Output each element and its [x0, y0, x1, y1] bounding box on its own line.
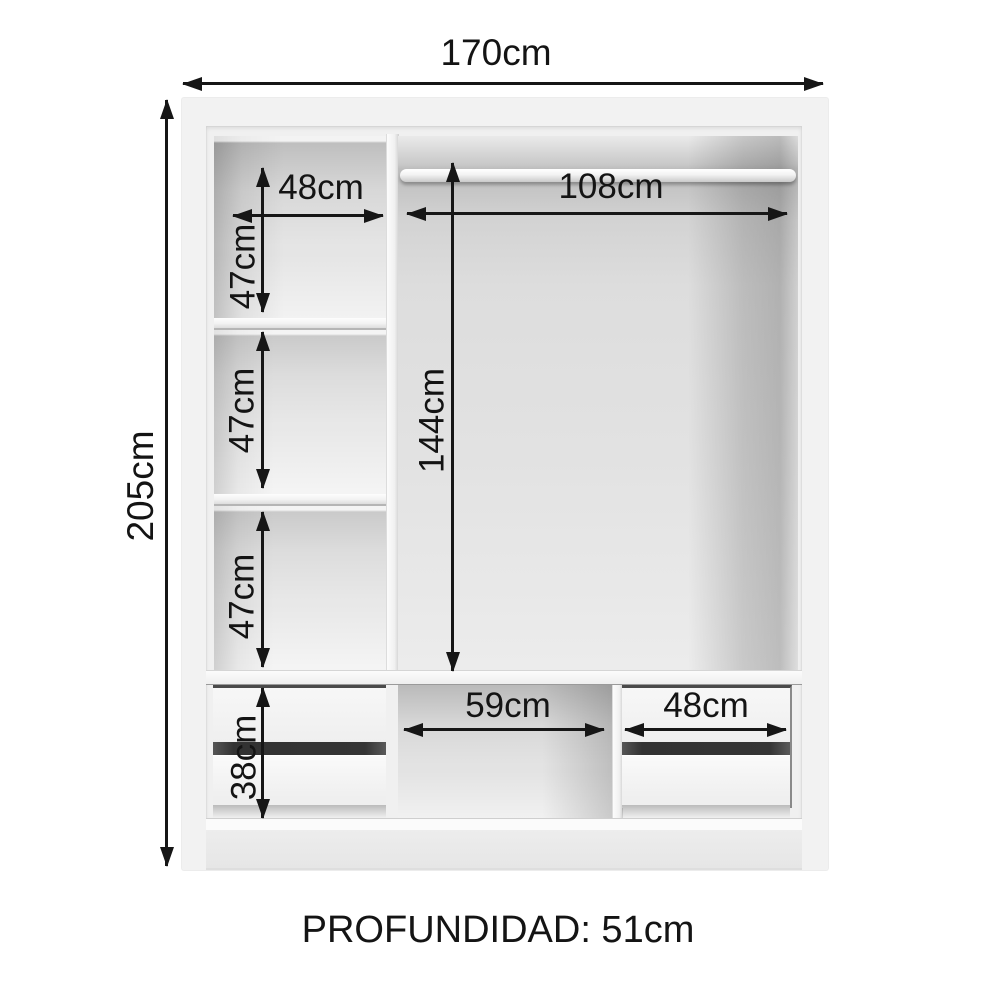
dim-center-niche-width-label: 59cm: [448, 687, 568, 724]
dim-total-width-label: 170cm: [396, 33, 596, 73]
dim-left-shelf-width-label: 48cm: [261, 169, 381, 206]
dim-hanging-width-label: 108cm: [551, 168, 671, 205]
bottom-shelf-board: [206, 670, 802, 685]
dim-total-width-arrow: [183, 82, 823, 85]
dim-total-height-label: 205cm: [122, 425, 160, 547]
plinth-base: [206, 830, 802, 870]
dim-middle-shelf-height-arrow: [261, 332, 264, 488]
dim-center-niche-width-arrow: [404, 728, 604, 731]
dim-drawer-height-label: 38cm: [226, 697, 263, 819]
dim-upper-shelf-height-label: 47cm: [225, 207, 262, 327]
dim-total-height-arrow: [165, 100, 168, 866]
dim-right-drawer-width-label: 48cm: [646, 687, 766, 724]
dim-lower-shelf-height-label: 47cm: [224, 537, 261, 657]
drawer-gap-right: [622, 742, 790, 755]
dim-middle-shelf-height-label: 47cm: [224, 351, 261, 471]
wardrobe-dimension-diagram: 170cm 205cm 48cm 108cm 47cm: [0, 0, 1000, 1000]
drawer-front-bottom-right: [622, 755, 790, 808]
dim-hanging-height-arrow: [451, 163, 454, 671]
dim-right-drawer-width-arrow: [625, 728, 786, 731]
drawer-shadow-right: [622, 805, 790, 818]
depth-label: PROFUNDIDAD: 51cm: [298, 906, 698, 954]
dim-lower-shelf-height-arrow: [261, 512, 264, 667]
dim-hanging-height-label: 144cm: [414, 350, 451, 492]
shelf-board-2: [214, 494, 386, 506]
dim-hanging-width-arrow: [407, 212, 787, 215]
